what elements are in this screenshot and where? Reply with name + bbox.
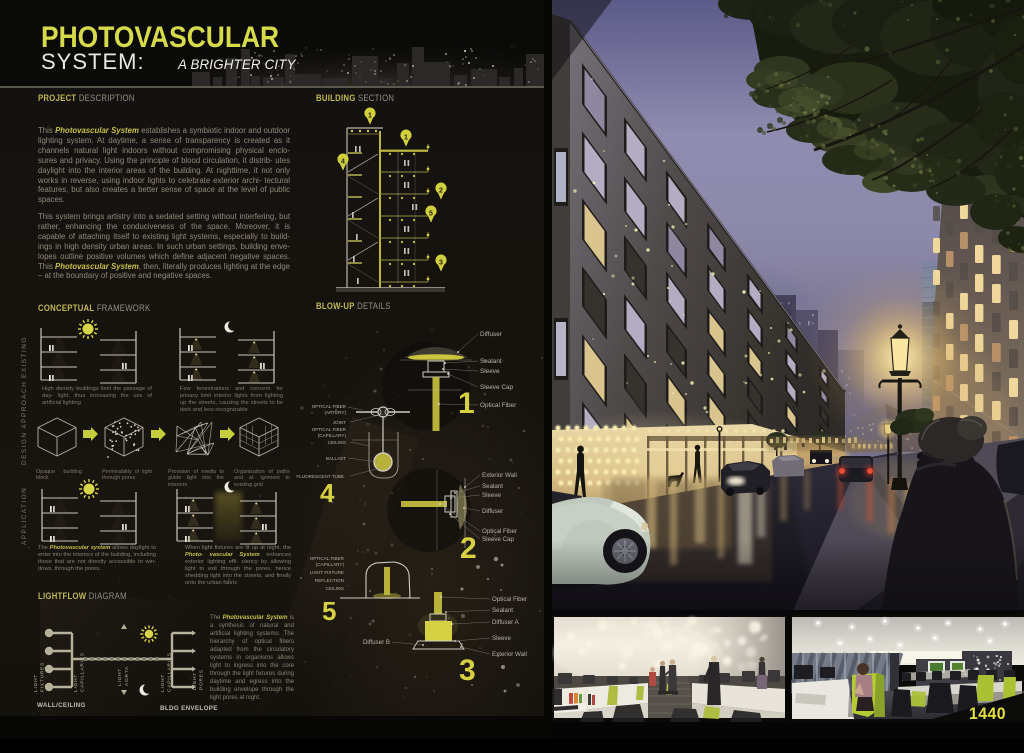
svg-text:Exterior Wall: Exterior Wall — [482, 472, 517, 479]
svg-text:Sealant: Sealant — [480, 358, 502, 365]
svg-text:Optical Fiber: Optical Fiber — [492, 596, 527, 603]
svg-text:OPTICAL FIBER: OPTICAL FIBER — [312, 427, 347, 432]
svg-text:Diffuser: Diffuser — [482, 508, 503, 515]
svg-text:Diffuser A: Diffuser A — [492, 619, 520, 626]
svg-text:JOINT: JOINT — [333, 420, 346, 425]
svg-text:OPTICAL FIBER: OPTICAL FIBER — [312, 404, 347, 409]
svg-text:OPTICAL FIBER: OPTICAL FIBER — [310, 556, 345, 561]
svg-text:1: 1 — [458, 387, 475, 420]
svg-text:4: 4 — [320, 478, 335, 508]
svg-text:Diffuser B: Diffuser B — [363, 639, 390, 646]
svg-text:REFLECTION: REFLECTION — [315, 578, 344, 583]
svg-text:LIGHT FIXTURE: LIGHT FIXTURE — [310, 570, 344, 575]
svg-text:Sealant: Sealant — [492, 607, 513, 614]
svg-text:BALLAST: BALLAST — [326, 456, 346, 461]
svg-text:Sleeve: Sleeve — [480, 368, 500, 375]
svg-text:Sleeve Cap: Sleeve Cap — [482, 536, 515, 543]
svg-text:Sleeve: Sleeve — [482, 492, 501, 499]
svg-text:Diffuser: Diffuser — [480, 331, 503, 338]
svg-text:Sleeve: Sleeve — [492, 635, 511, 642]
svg-text:Sleeve Cap: Sleeve Cap — [480, 384, 513, 391]
svg-text:(ARTERY): (ARTERY) — [324, 410, 346, 415]
svg-text:Optical Fiber: Optical Fiber — [480, 402, 517, 409]
svg-text:Optical Fiber: Optical Fiber — [482, 528, 517, 535]
svg-text:Exterior Wall: Exterior Wall — [492, 651, 527, 658]
svg-text:3: 3 — [459, 654, 476, 687]
svg-text:(CAPILLARY): (CAPILLARY) — [318, 433, 347, 438]
svg-text:CEILING: CEILING — [326, 586, 345, 591]
svg-text:Sealant: Sealant — [482, 483, 503, 490]
svg-text:2: 2 — [460, 532, 477, 565]
svg-text:CEILING: CEILING — [328, 440, 347, 445]
svg-text:5: 5 — [322, 596, 336, 626]
svg-text:(CAPILLARY): (CAPILLARY) — [316, 562, 345, 567]
